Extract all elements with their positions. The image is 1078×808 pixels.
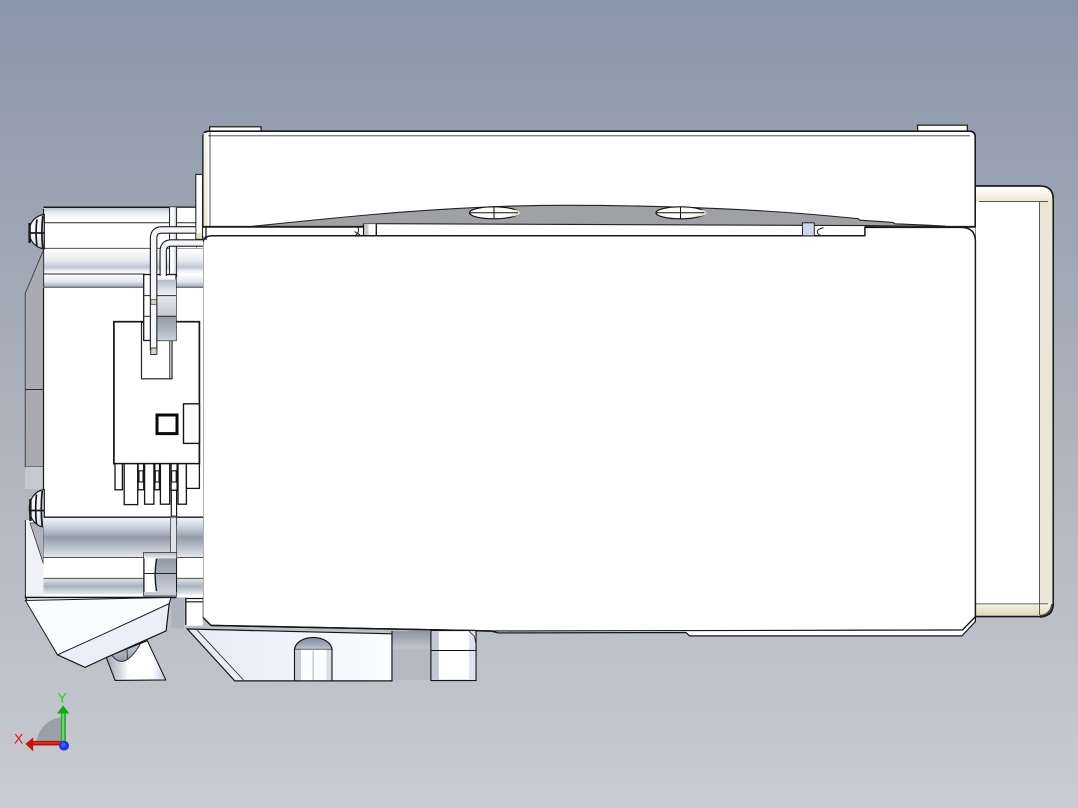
svg-text:Y: Y <box>58 690 68 706</box>
svg-text:X: X <box>14 731 24 747</box>
